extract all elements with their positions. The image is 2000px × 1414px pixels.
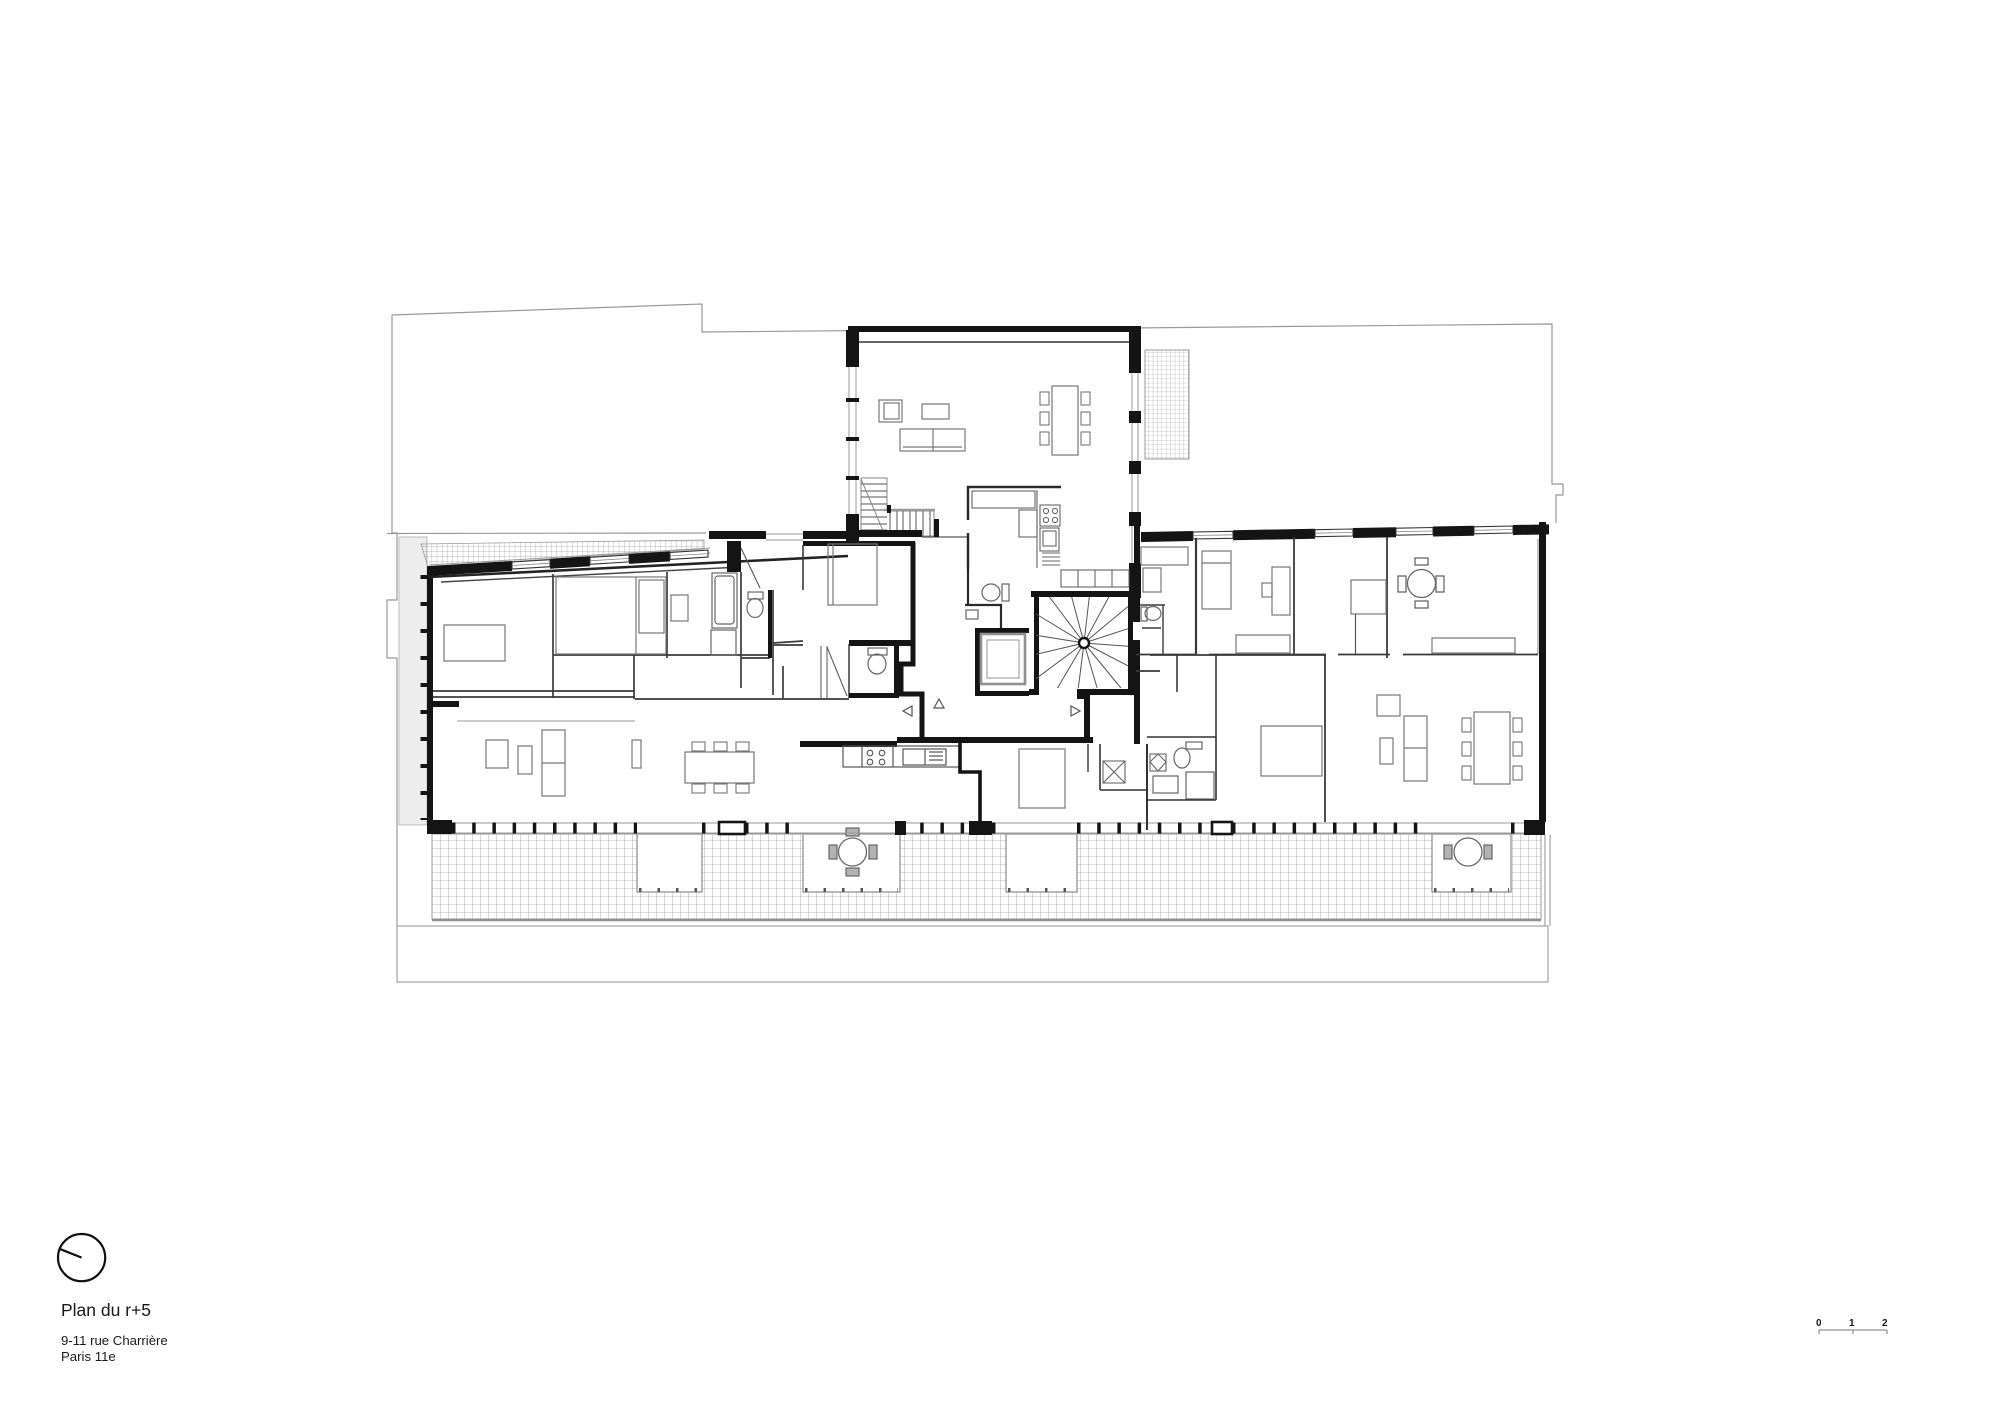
svg-text:0: 0 — [1816, 1318, 1822, 1329]
svg-text:Paris 11e: Paris 11e — [61, 1349, 116, 1364]
svg-text:Plan du r+5: Plan du r+5 — [61, 1300, 151, 1320]
svg-text:9-11 rue Charrière: 9-11 rue Charrière — [61, 1333, 168, 1348]
svg-text:2: 2 — [1882, 1318, 1888, 1329]
svg-text:1: 1 — [1849, 1318, 1855, 1329]
